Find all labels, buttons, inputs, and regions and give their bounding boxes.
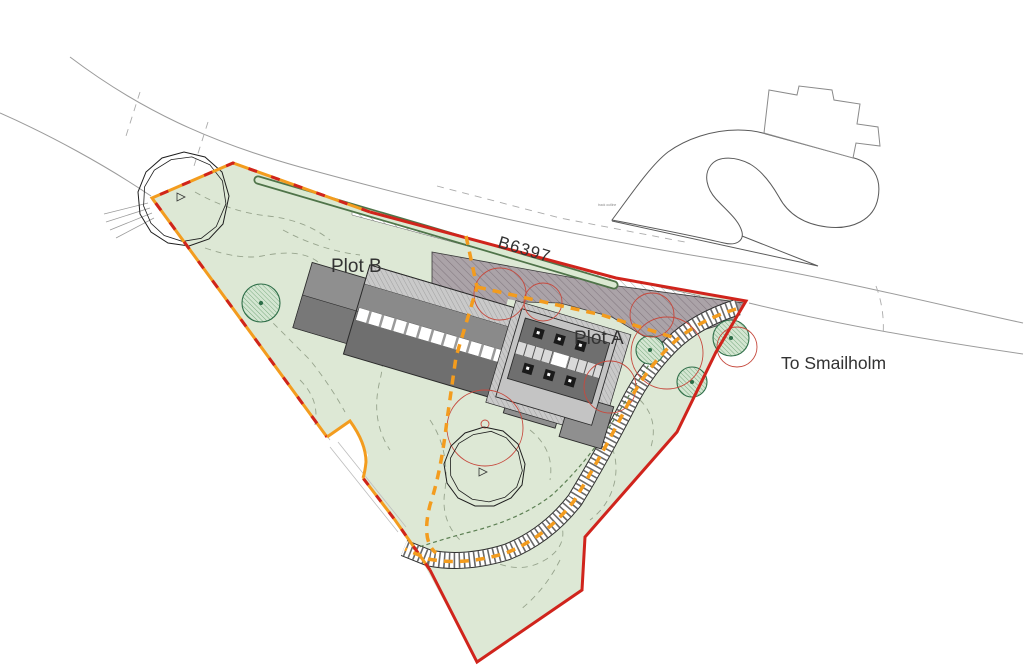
direction-label: To Smailholm xyxy=(781,353,886,373)
plot-b-label: Plot B xyxy=(331,256,382,277)
driveway-note-label: track outline xyxy=(598,203,616,207)
site-plan-canvas: track outline xyxy=(0,0,1024,669)
site-plan-drawing: track outline xyxy=(0,0,1024,669)
plot-a-label: Plot A xyxy=(574,328,624,349)
